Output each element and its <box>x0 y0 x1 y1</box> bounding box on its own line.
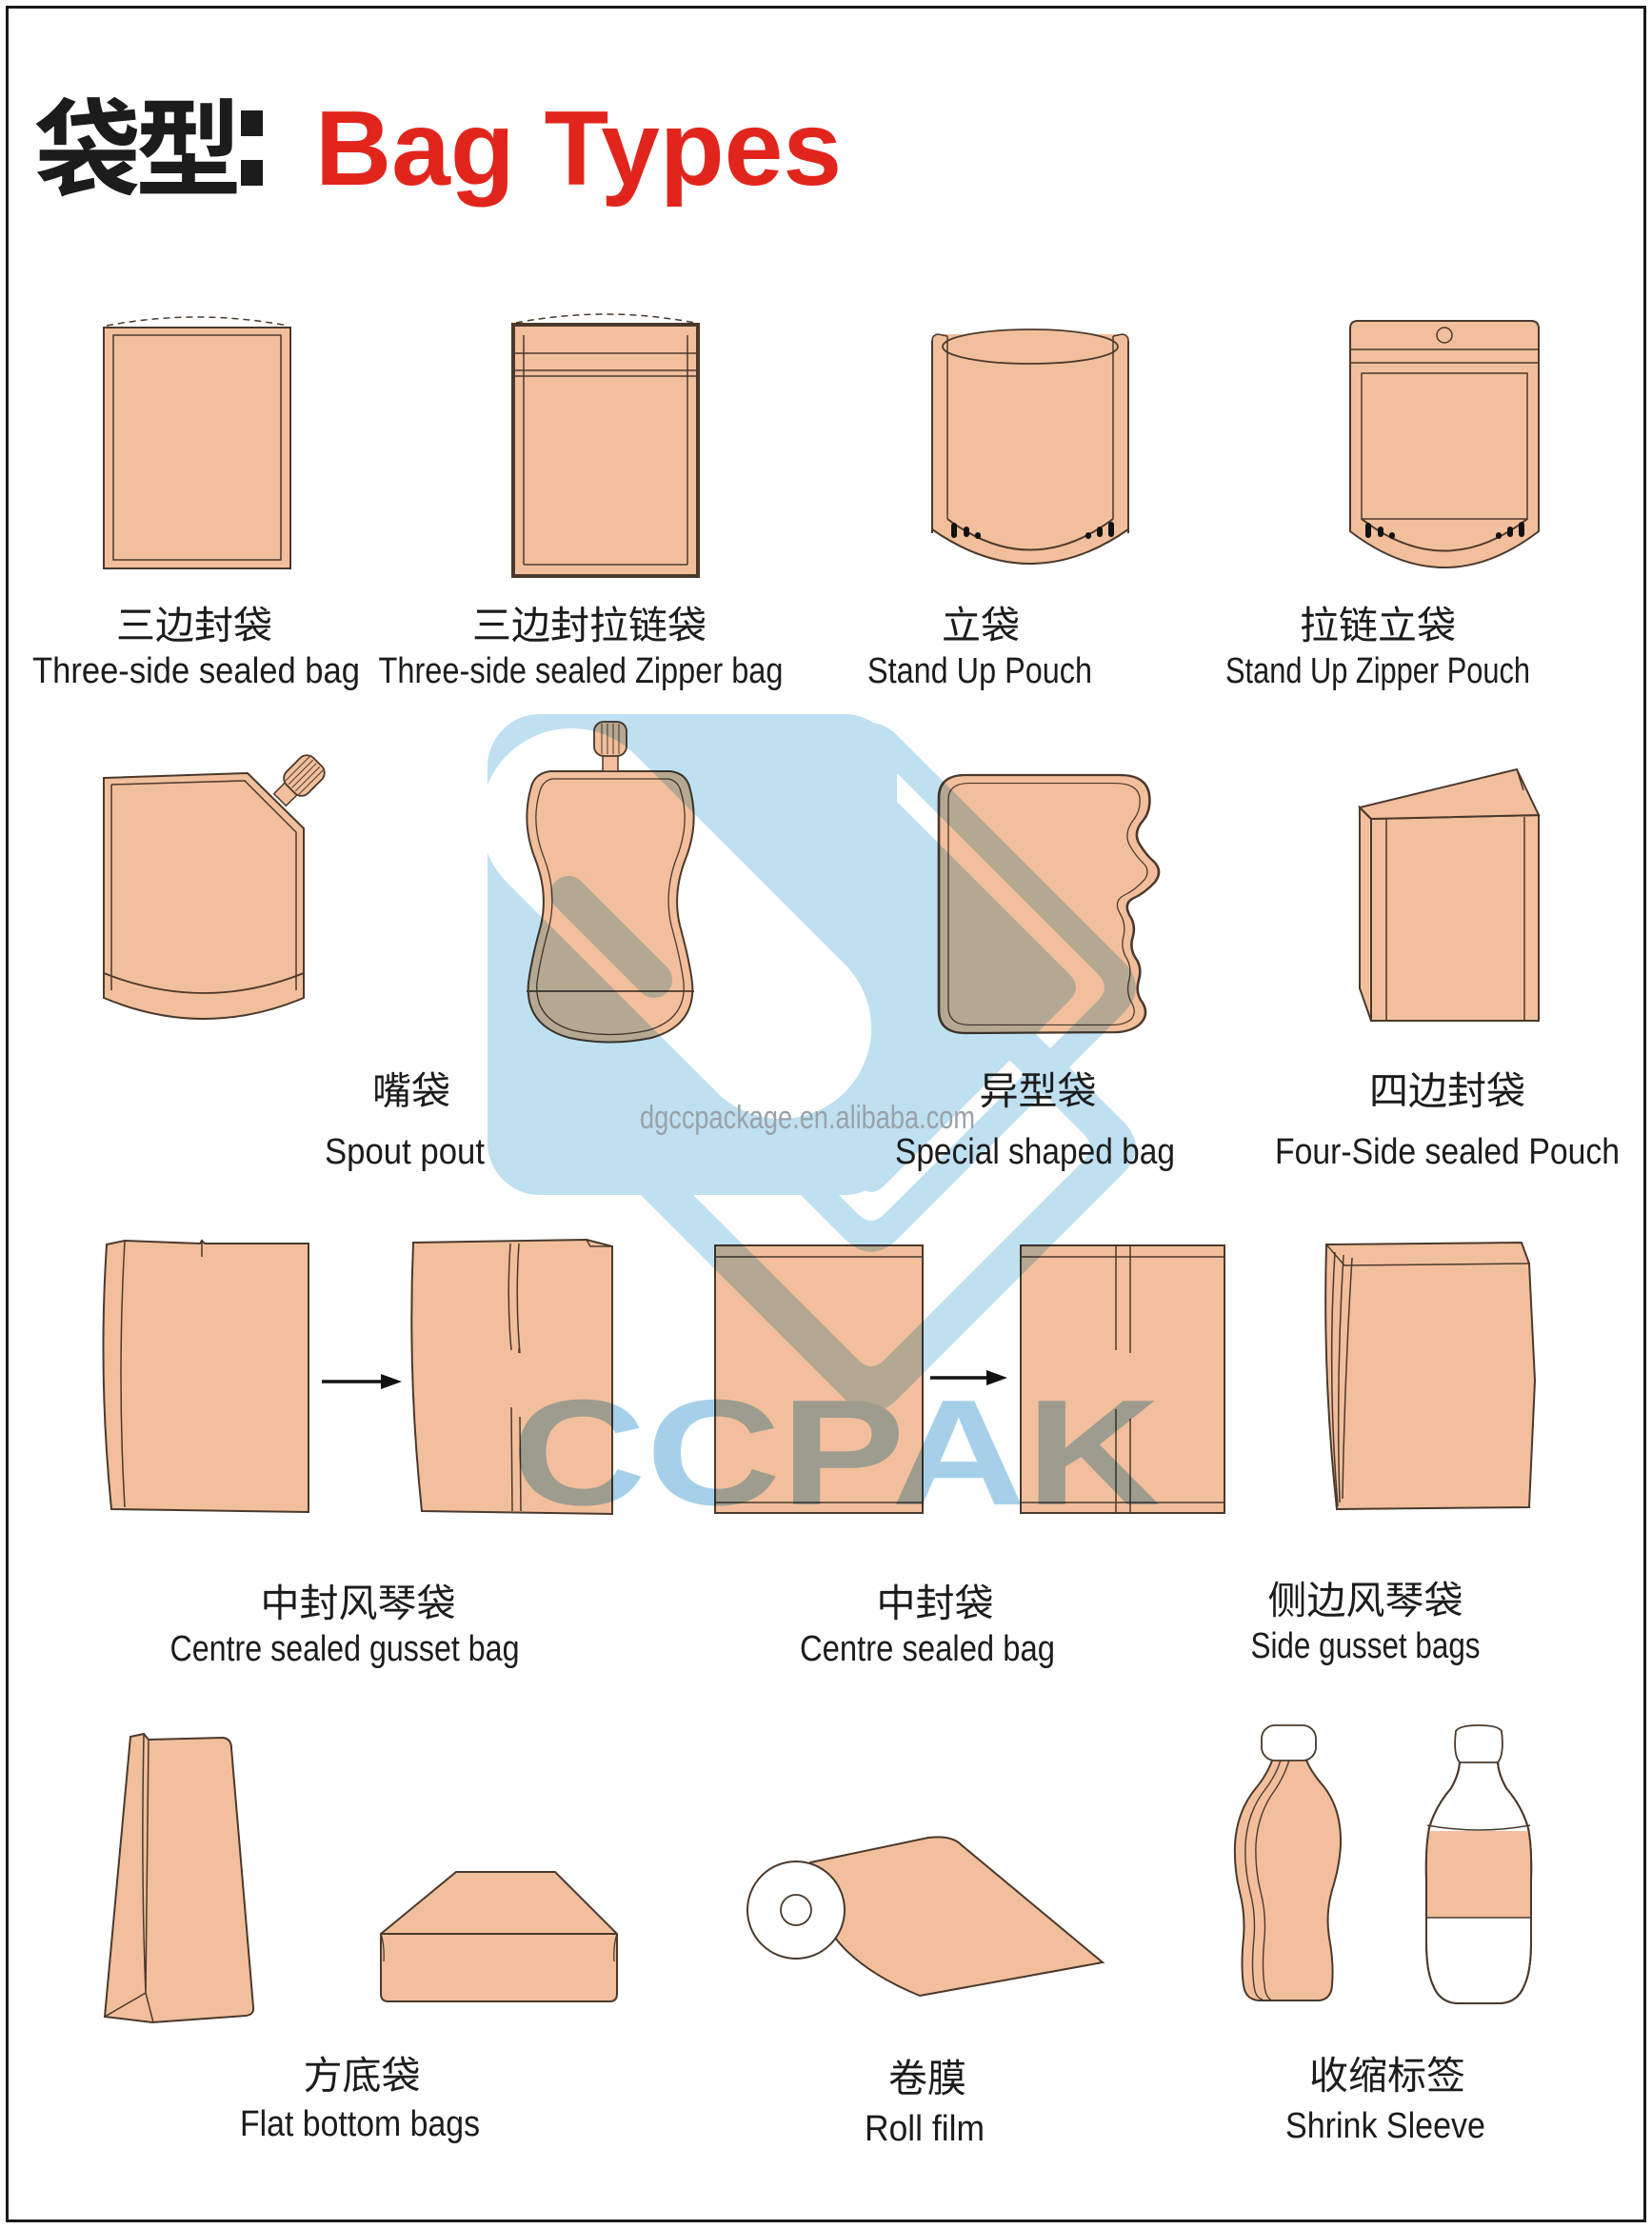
svg-text:Centre sealed gusset bag: Centre sealed gusset bag <box>170 1629 520 1669</box>
svg-text:Three-side sealed bag: Three-side sealed bag <box>32 651 360 691</box>
svg-text:Three-side sealed Zipper bag: Three-side sealed Zipper bag <box>379 651 784 691</box>
svg-text:Four-Side sealed Pouch: Four-Side sealed Pouch <box>1275 1132 1620 1172</box>
svg-text:Flat bottom bags: Flat bottom bags <box>240 2104 480 2144</box>
svg-text:Shrink Sleeve: Shrink Sleeve <box>1285 2106 1485 2146</box>
svg-text:Spout pout: Spout pout <box>325 1132 485 1172</box>
svg-text:Centre sealed bag: Centre sealed bag <box>800 1629 1055 1669</box>
svg-text:Bag Types: Bag Types <box>315 90 842 208</box>
svg-text:Stand Up Zipper Pouch: Stand Up Zipper Pouch <box>1225 651 1530 691</box>
svg-text:Stand Up Pouch: Stand Up Pouch <box>867 651 1092 691</box>
svg-text:Special shaped bag: Special shaped bag <box>895 1132 1175 1172</box>
svg-text:CCPAK: CCPAK <box>511 1369 1161 1537</box>
svg-text:Roll film: Roll film <box>865 2109 985 2149</box>
svg-text:dgccpackage.en.alibaba.com: dgccpackage.en.alibaba.com <box>640 1100 975 1136</box>
svg-text:Side gusset bags: Side gusset bags <box>1251 1626 1481 1666</box>
